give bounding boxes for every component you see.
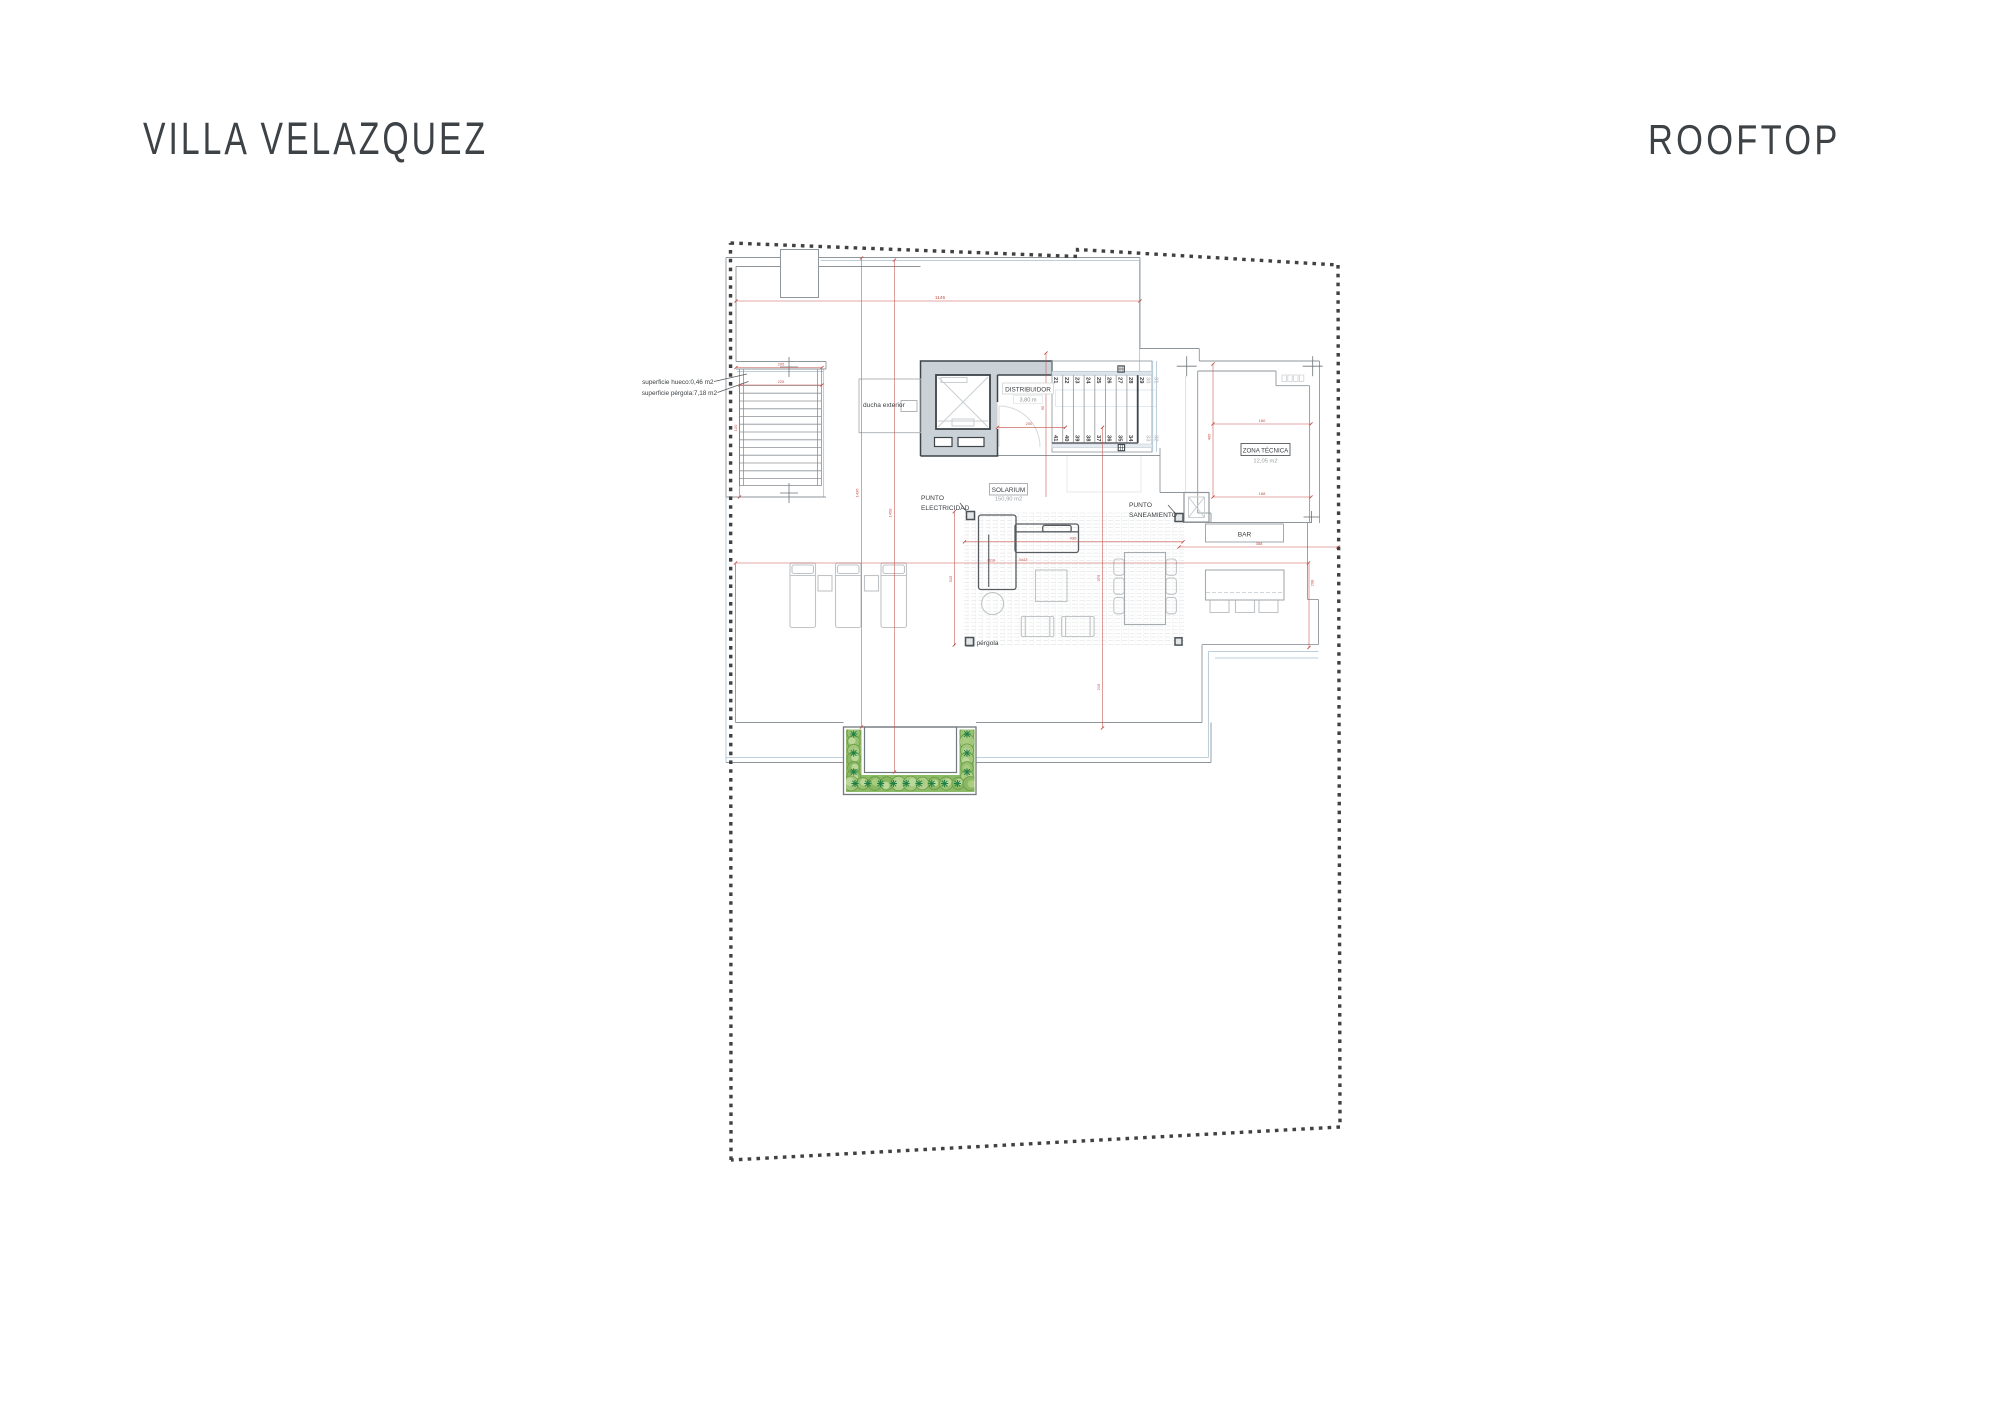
svg-text:37: 37 (1095, 435, 1101, 441)
svg-text:27: 27 (1116, 377, 1122, 383)
svg-text:1436: 1436 (855, 488, 860, 498)
svg-text:ZONA TÉCNICA: ZONA TÉCNICA (1243, 448, 1289, 455)
svg-text:22: 22 (1063, 377, 1069, 383)
svg-text:406: 406 (1207, 433, 1212, 440)
svg-text:3,80 m: 3,80 m (1019, 398, 1036, 404)
svg-text:24: 24 (1084, 377, 1090, 384)
svg-text:435: 435 (1070, 536, 1077, 541)
svg-text:40: 40 (1063, 435, 1069, 441)
svg-text:215: 215 (1096, 683, 1101, 690)
svg-text:28: 28 (1127, 377, 1133, 384)
svg-text:1145: 1145 (935, 295, 946, 301)
svg-text:BAR: BAR (1238, 532, 1252, 539)
svg-text:38: 38 (1084, 435, 1090, 442)
svg-text:39: 39 (1074, 435, 1080, 442)
svg-text:36: 36 (1106, 435, 1112, 442)
svg-text:23: 23 (1074, 377, 1080, 384)
svg-text:1458: 1458 (888, 508, 893, 518)
svg-text:41: 41 (1052, 435, 1058, 442)
svg-text:120: 120 (733, 424, 738, 431)
svg-text:32: 32 (1153, 435, 1159, 441)
svg-text:31: 31 (1153, 377, 1159, 384)
svg-text:29: 29 (1138, 377, 1144, 384)
svg-text:12,05 m2: 12,05 m2 (1253, 459, 1277, 465)
svg-text:208: 208 (1310, 579, 1315, 586)
svg-text:pérgola: pérgola (977, 640, 999, 647)
svg-text:30: 30 (1145, 377, 1151, 383)
svg-text:295: 295 (778, 362, 785, 367)
svg-text:ducha exterior: ducha exterior (863, 402, 906, 409)
svg-text:33: 33 (1145, 435, 1151, 442)
svg-text:PUNTO: PUNTO (1129, 502, 1152, 509)
svg-text:superficie pérgola:7,18 m2: superficie pérgola:7,18 m2 (642, 390, 718, 397)
svg-text:26: 26 (1106, 377, 1112, 384)
svg-text:PUNTO: PUNTO (921, 495, 944, 502)
svg-text:25: 25 (1095, 377, 1101, 384)
svg-text:superficie hueco:0,46 m2: superficie hueco:0,46 m2 (642, 379, 714, 386)
svg-text:34: 34 (1127, 435, 1133, 442)
svg-text:ELECTRICIDAD: ELECTRICIDAD (921, 505, 970, 512)
svg-text:35: 35 (1116, 435, 1122, 442)
svg-text:388: 388 (1256, 541, 1263, 546)
svg-text:SANEAMIENTO: SANEAMIENTO (1129, 512, 1177, 519)
svg-text:225: 225 (778, 379, 785, 384)
svg-text:188: 188 (1259, 491, 1266, 496)
svg-text:200: 200 (1026, 421, 1033, 426)
svg-text:1618: 1618 (987, 559, 995, 563)
svg-text:315: 315 (948, 575, 953, 582)
svg-text:SOLARIUM: SOLARIUM (992, 487, 1025, 494)
svg-text:90: 90 (1041, 406, 1045, 410)
svg-text:180: 180 (1259, 418, 1266, 423)
svg-text:DISTRIBUIDOR: DISTRIBUIDOR (1005, 387, 1051, 394)
svg-text:150,90 m2: 150,90 m2 (995, 497, 1022, 503)
svg-text:375: 375 (1096, 574, 1101, 581)
svg-text:3443: 3443 (1019, 557, 1029, 562)
